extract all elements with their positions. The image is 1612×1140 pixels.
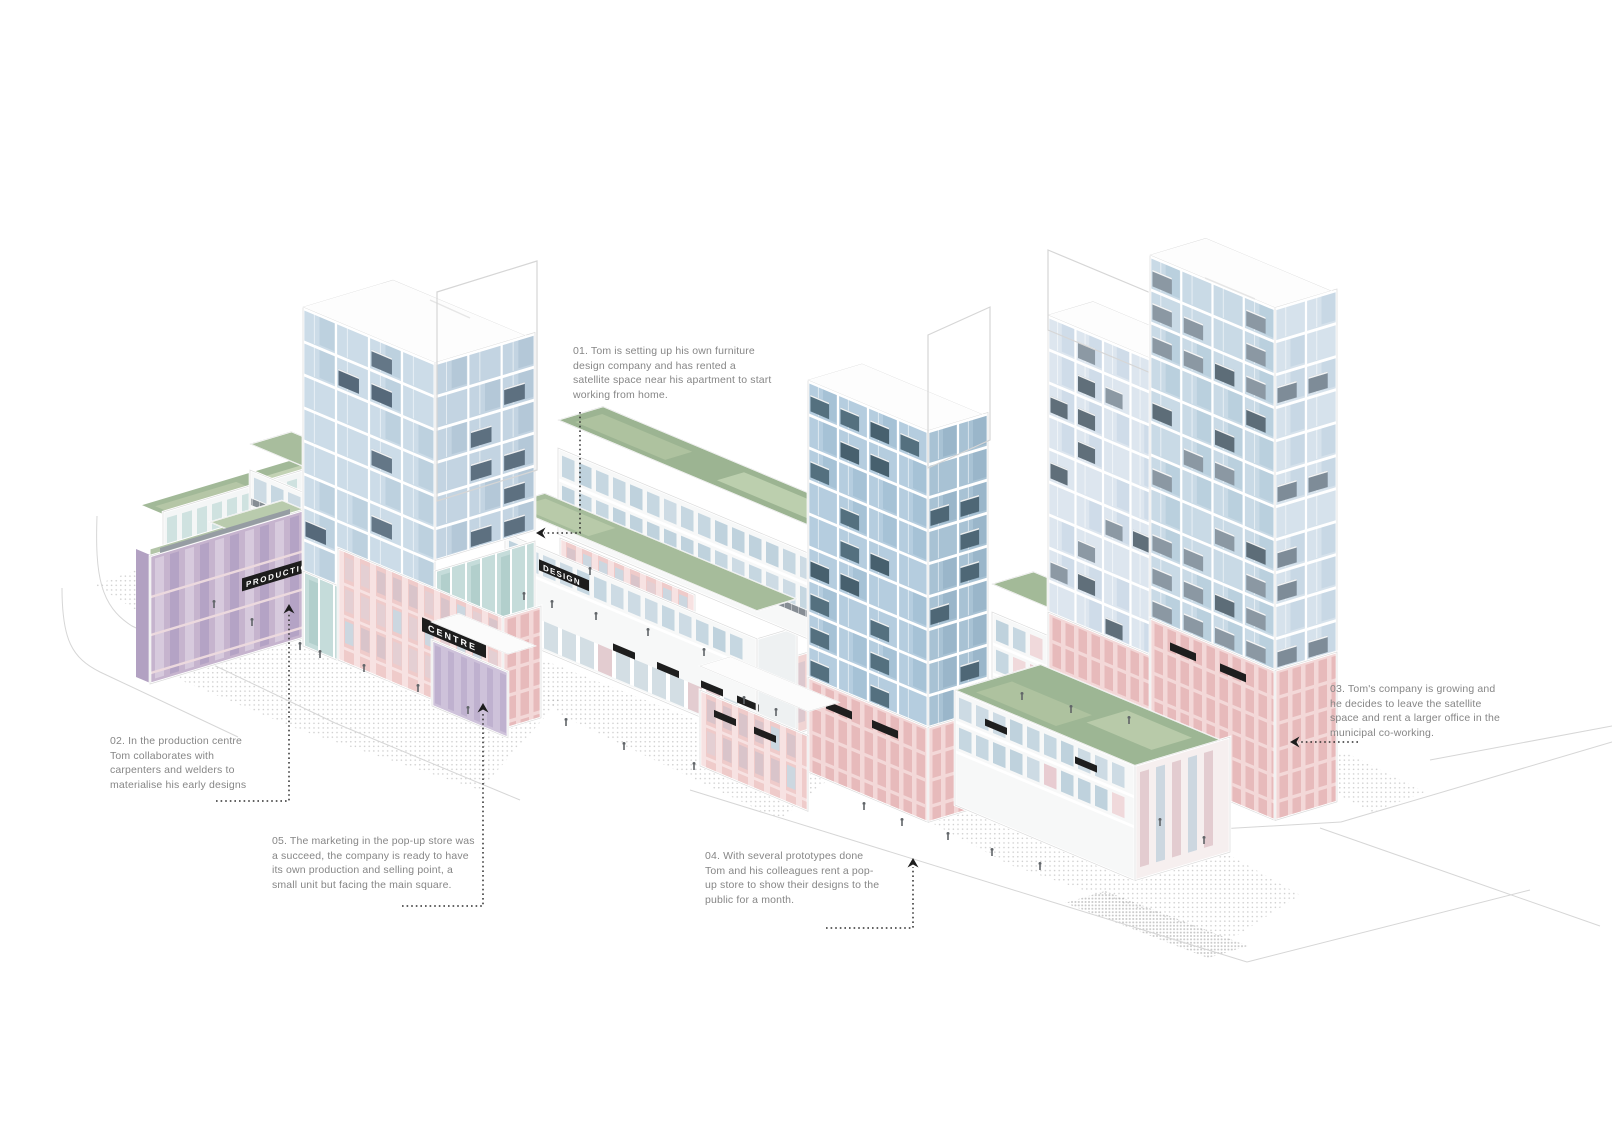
- person: [1203, 836, 1206, 839]
- person: [1159, 818, 1162, 821]
- note-04: 04. With several prototypes done Tom and…: [705, 849, 880, 907]
- page: PRODUCTION CENTREDESIGNCENTRECO-WO 01. T…: [0, 0, 1612, 1140]
- central-tower-facade: [807, 380, 929, 728]
- road-line: [1320, 828, 1600, 926]
- person: [703, 648, 706, 651]
- person: [299, 642, 302, 645]
- right-tower-3-side: [1274, 289, 1338, 671]
- right-tower-3-facade: [1149, 255, 1276, 671]
- central-tower-side: [927, 412, 989, 728]
- right-tower-2-facade: [1047, 315, 1159, 659]
- left-tower-side: [434, 332, 536, 561]
- note-05: 05. The marketing in the pop-up store wa…: [272, 834, 478, 892]
- note-02: 02. In the production centre Tom collabo…: [110, 734, 260, 792]
- person: [647, 628, 650, 631]
- person: [991, 848, 994, 851]
- person: [523, 592, 526, 595]
- note-01: 01. Tom is setting up his own furniture …: [573, 344, 773, 402]
- person: [565, 718, 568, 721]
- person: [589, 567, 592, 570]
- person: [595, 612, 598, 615]
- axonometric-illustration: PRODUCTION CENTREDESIGNCENTRECO-WO: [0, 0, 1612, 1140]
- person: [775, 708, 778, 711]
- person: [251, 618, 254, 621]
- person: [863, 802, 866, 805]
- person: [363, 664, 366, 667]
- person: [1039, 862, 1042, 865]
- person: [1128, 716, 1131, 719]
- person: [417, 684, 420, 687]
- person: [551, 600, 554, 603]
- coworking-podium-side: [1275, 652, 1337, 821]
- person: [467, 706, 470, 709]
- person: [213, 600, 216, 603]
- person: [1070, 705, 1073, 708]
- person: [319, 650, 322, 653]
- note-04-arrow: [908, 858, 919, 868]
- person: [623, 742, 626, 745]
- person: [693, 762, 696, 765]
- person: [743, 696, 746, 699]
- note-03: 03. Tom's company is growing and he deci…: [1330, 682, 1510, 740]
- person: [947, 832, 950, 835]
- person: [1021, 692, 1024, 695]
- person: [901, 818, 904, 821]
